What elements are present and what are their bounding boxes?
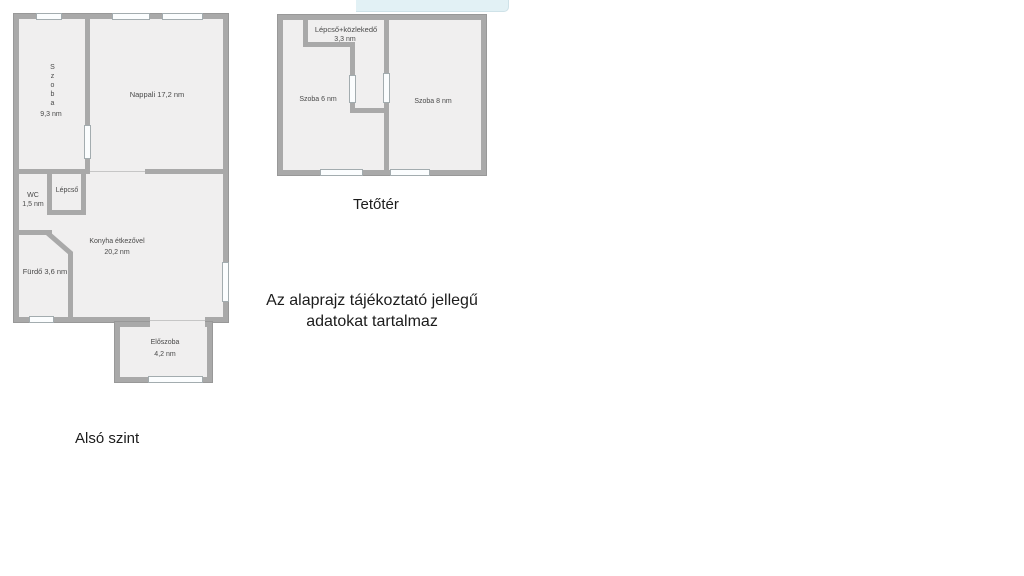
opening-threshold-line [90,171,145,172]
room-label-lepcso: Lépcső [56,186,79,195]
window [390,169,430,176]
floor-plan-page: Szoba 9,3 nm Nappali 17,2 nm WC 1,5 nm L… [0,0,1024,576]
room-label-wc: WC [27,191,39,200]
window [148,376,203,383]
door-opening [383,73,390,103]
room-label-eloszoba: Előszoba [151,338,180,347]
window [162,13,203,20]
wall-segment [68,252,73,317]
opening-threshold-line [150,320,205,321]
disclaimer-text: Az alaprajz tájékoztató jellegű adatokat… [241,290,503,332]
window [320,169,363,176]
room-area-wc: 1,5 nm [22,200,43,209]
room-label-konyha: Konyha étkezővel [89,237,144,246]
caption-also-szint: Alsó szint [75,430,139,447]
window [222,262,229,302]
window [36,13,62,20]
door-opening [84,125,91,159]
wall-segment [81,174,86,215]
room-area-lepcso-kozlekedo: 3,3 nm [334,35,355,44]
wall-segment [47,174,52,215]
window [29,316,54,323]
room-area-konyha: 20,2 nm [104,248,129,257]
window [112,13,150,20]
room-label-nappali: Nappali 17,2 nm [130,90,185,99]
room-label-szoba-8: Szoba 8 nm [414,97,451,106]
caption-tetoter: Tetőtér [353,196,399,213]
room-area-szoba: 9,3 nm [40,110,61,119]
door-opening [349,75,356,103]
highlight-bar-fragment [356,0,509,12]
room-label-szoba-6: Szoba 6 nm [299,95,336,104]
room-label-furdo: Fürdő 3,6 nm [23,267,68,276]
room-label-szoba: Szoba [48,64,56,109]
room-label-lepcso-kozlekedo: Lépcső+közlekedő [315,25,377,34]
wall-segment [47,210,86,215]
room-area-eloszoba: 4,2 nm [154,350,175,359]
wall-opening [150,317,205,327]
